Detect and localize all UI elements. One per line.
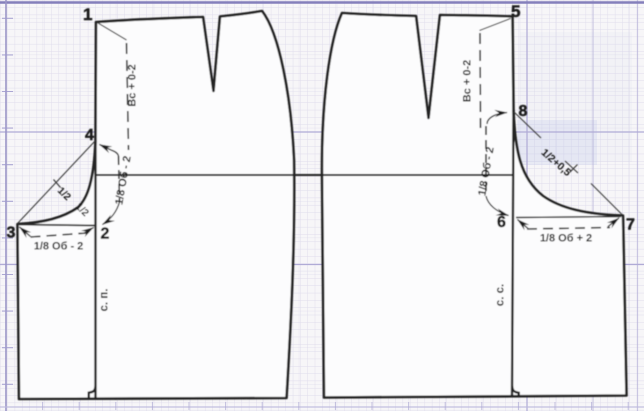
svg-text:Вс + 0-2: Вс + 0-2 (127, 64, 139, 107)
svg-text:6: 6 (497, 214, 506, 231)
svg-text:8: 8 (519, 103, 528, 120)
svg-text:1: 1 (83, 5, 92, 24)
svg-text:1/8 Об - 2: 1/8 Об - 2 (34, 241, 84, 253)
svg-text:4: 4 (85, 127, 94, 144)
svg-text:с. п.: с. п. (99, 289, 111, 312)
svg-text:7: 7 (626, 217, 635, 234)
svg-text:2: 2 (101, 226, 110, 243)
svg-text:Вс + 0-2: Вс + 0-2 (462, 60, 474, 103)
svg-text:1/8 Об + 2: 1/8 Об + 2 (540, 233, 592, 245)
svg-text:с. с.: с. с. (495, 284, 507, 306)
svg-text:3: 3 (7, 225, 16, 242)
svg-text:5: 5 (511, 2, 520, 21)
